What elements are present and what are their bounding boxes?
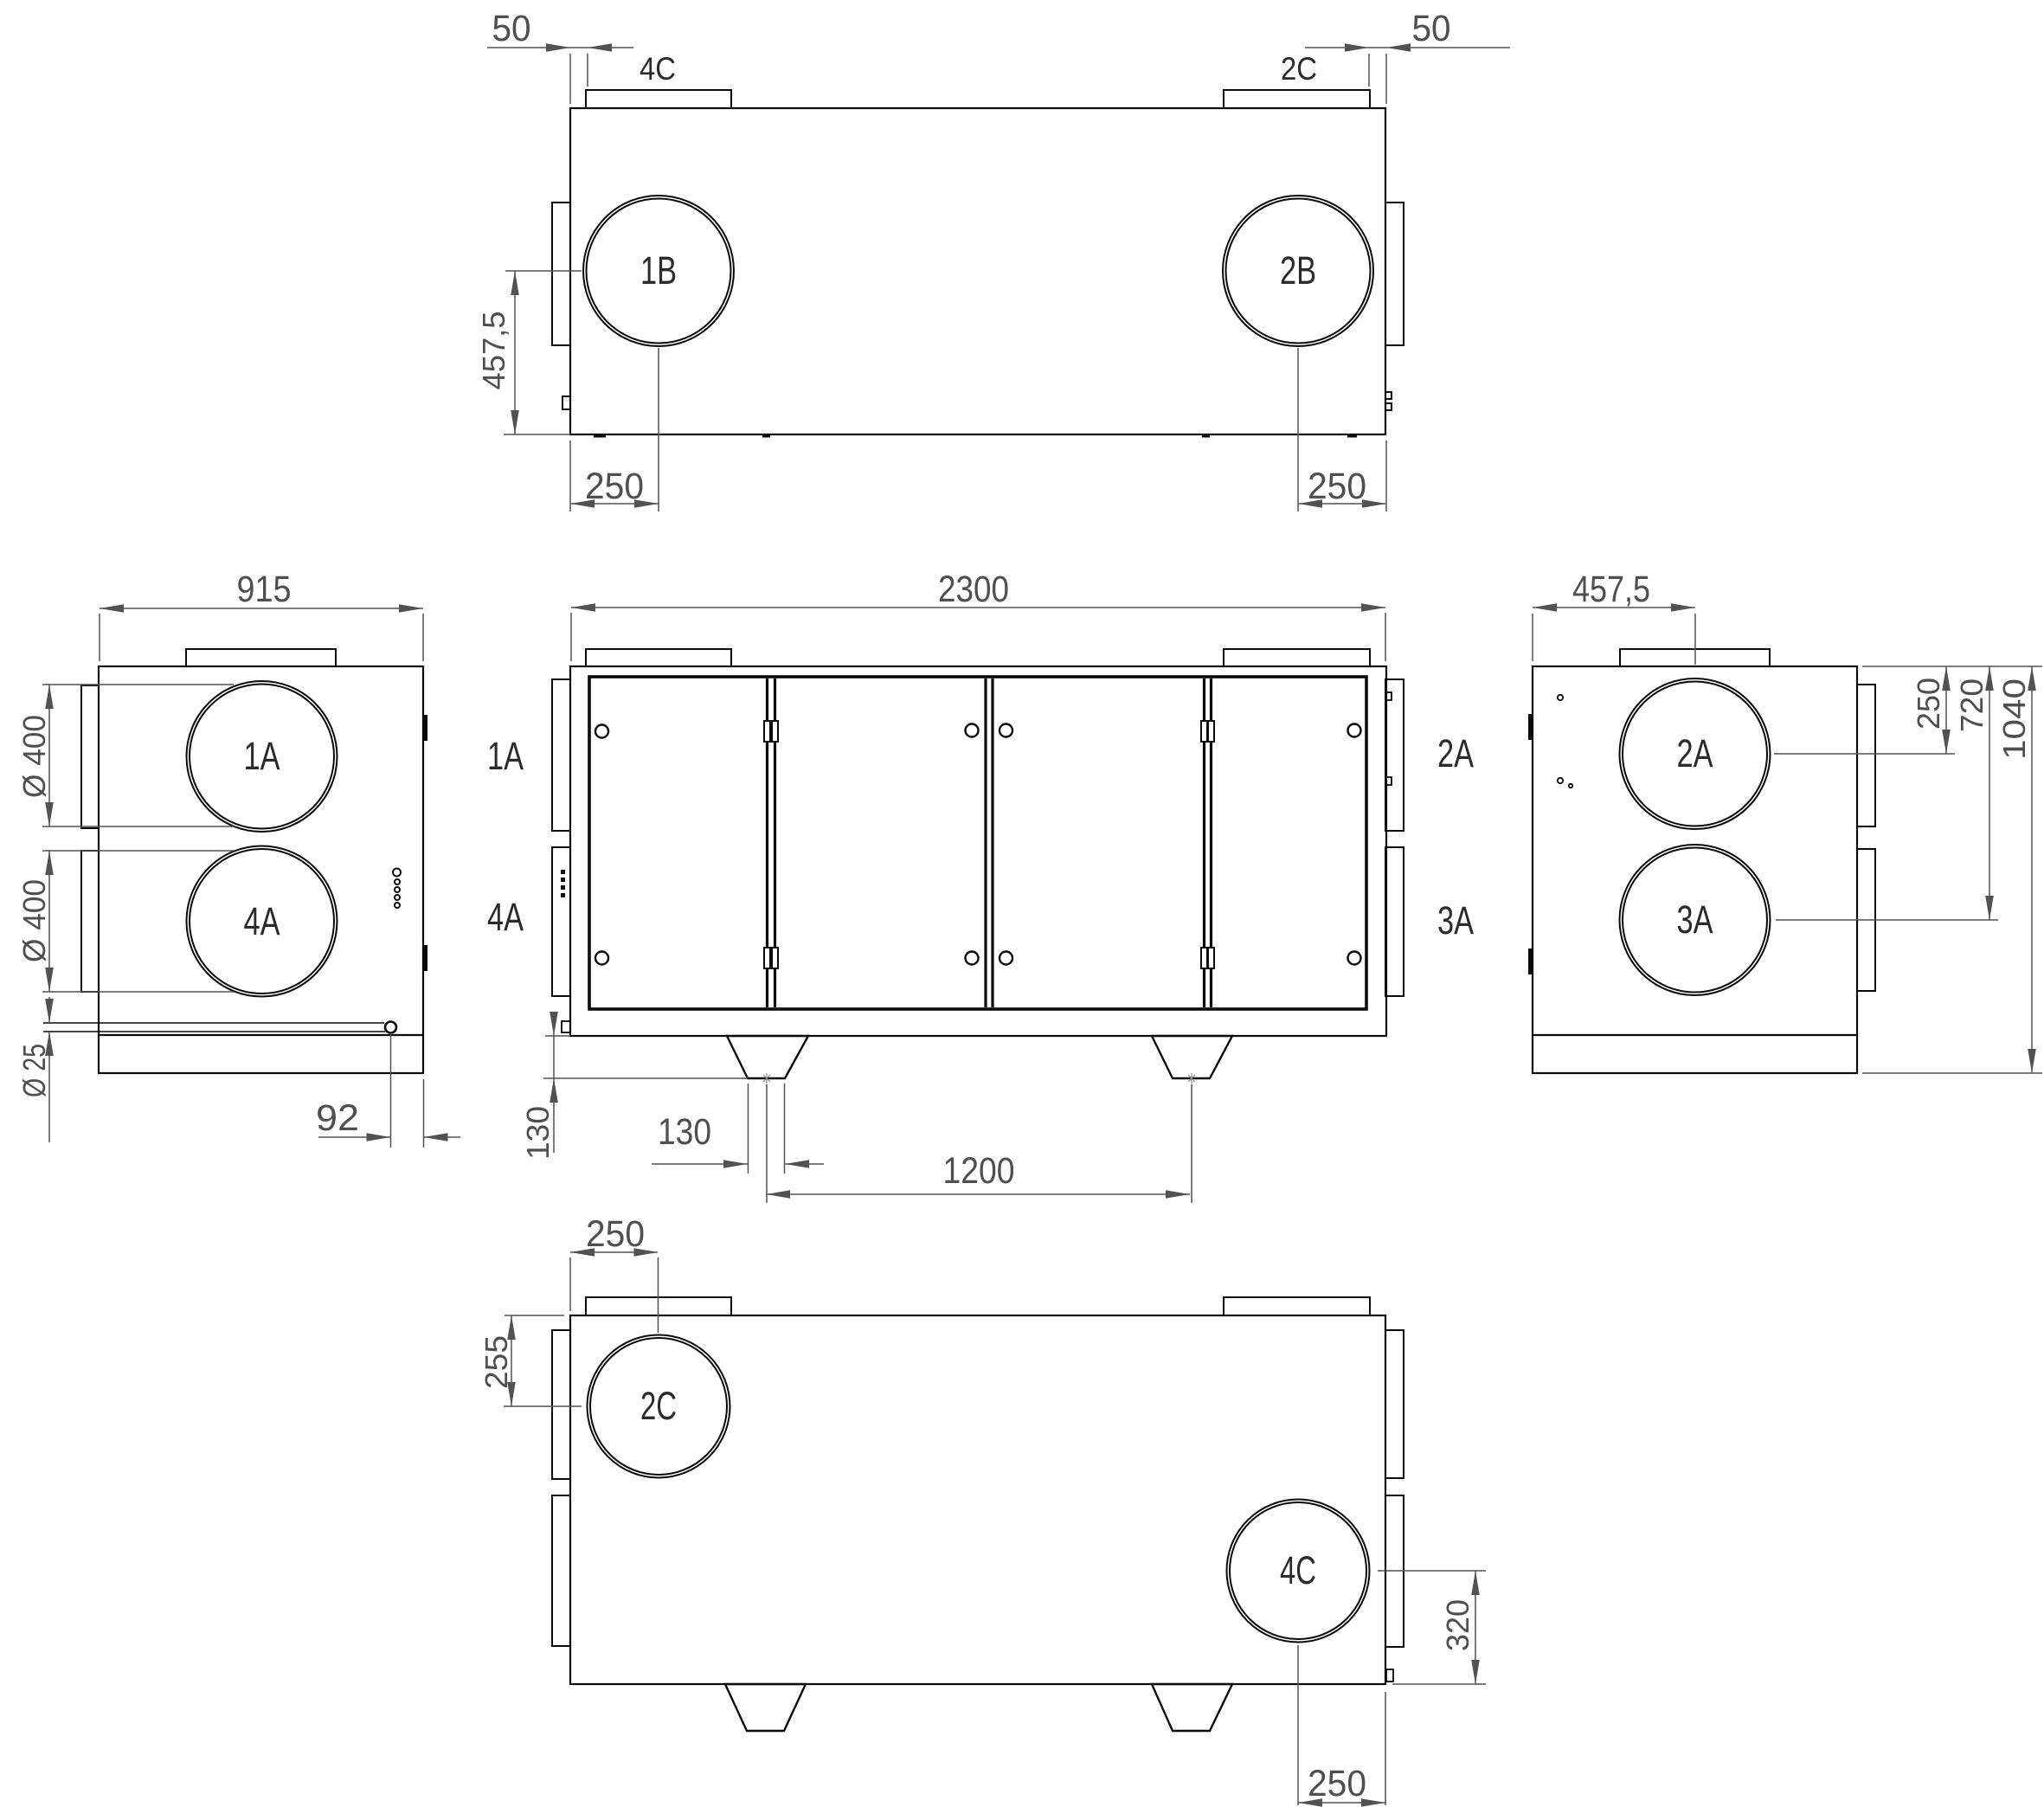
svg-text:457,5: 457,5 — [476, 312, 511, 390]
svg-text:1B: 1B — [640, 248, 677, 293]
svg-text:Ø 25: Ø 25 — [16, 1044, 52, 1097]
svg-text:255: 255 — [479, 1335, 514, 1389]
svg-text:130: 130 — [520, 1106, 556, 1160]
svg-text:1A: 1A — [244, 734, 280, 778]
svg-text:50: 50 — [1412, 8, 1451, 49]
svg-text:4A: 4A — [487, 895, 524, 939]
svg-text:250: 250 — [586, 1213, 645, 1255]
svg-text:250: 250 — [1911, 678, 1946, 730]
svg-text:2C: 2C — [640, 1384, 677, 1428]
svg-text:915: 915 — [237, 569, 292, 610]
svg-text:320: 320 — [1440, 1599, 1475, 1651]
svg-text:1040: 1040 — [1996, 678, 2032, 760]
svg-text:4C: 4C — [640, 51, 676, 87]
svg-text:250: 250 — [1308, 466, 1366, 507]
svg-text:2300: 2300 — [938, 569, 1009, 610]
svg-text:Ø 400: Ø 400 — [16, 715, 52, 798]
svg-text:2A: 2A — [1677, 731, 1713, 775]
svg-text:457,5: 457,5 — [1572, 569, 1650, 610]
svg-text:250: 250 — [585, 466, 644, 507]
svg-text:2B: 2B — [1280, 248, 1316, 293]
svg-text:Ø 400: Ø 400 — [16, 879, 52, 962]
svg-text:3A: 3A — [1677, 897, 1713, 942]
svg-text:92: 92 — [316, 1097, 359, 1139]
svg-text:4C: 4C — [1280, 1548, 1316, 1592]
svg-text:50: 50 — [492, 8, 531, 49]
svg-text:2A: 2A — [1437, 731, 1474, 775]
svg-text:2C: 2C — [1281, 51, 1317, 87]
svg-text:1A: 1A — [487, 734, 524, 778]
svg-text:4A: 4A — [244, 899, 280, 943]
svg-text:3A: 3A — [1437, 898, 1474, 942]
svg-text:130: 130 — [658, 1111, 711, 1153]
svg-text:720: 720 — [1954, 678, 1989, 732]
svg-text:250: 250 — [1308, 1763, 1366, 1804]
svg-text:1200: 1200 — [943, 1150, 1015, 1192]
